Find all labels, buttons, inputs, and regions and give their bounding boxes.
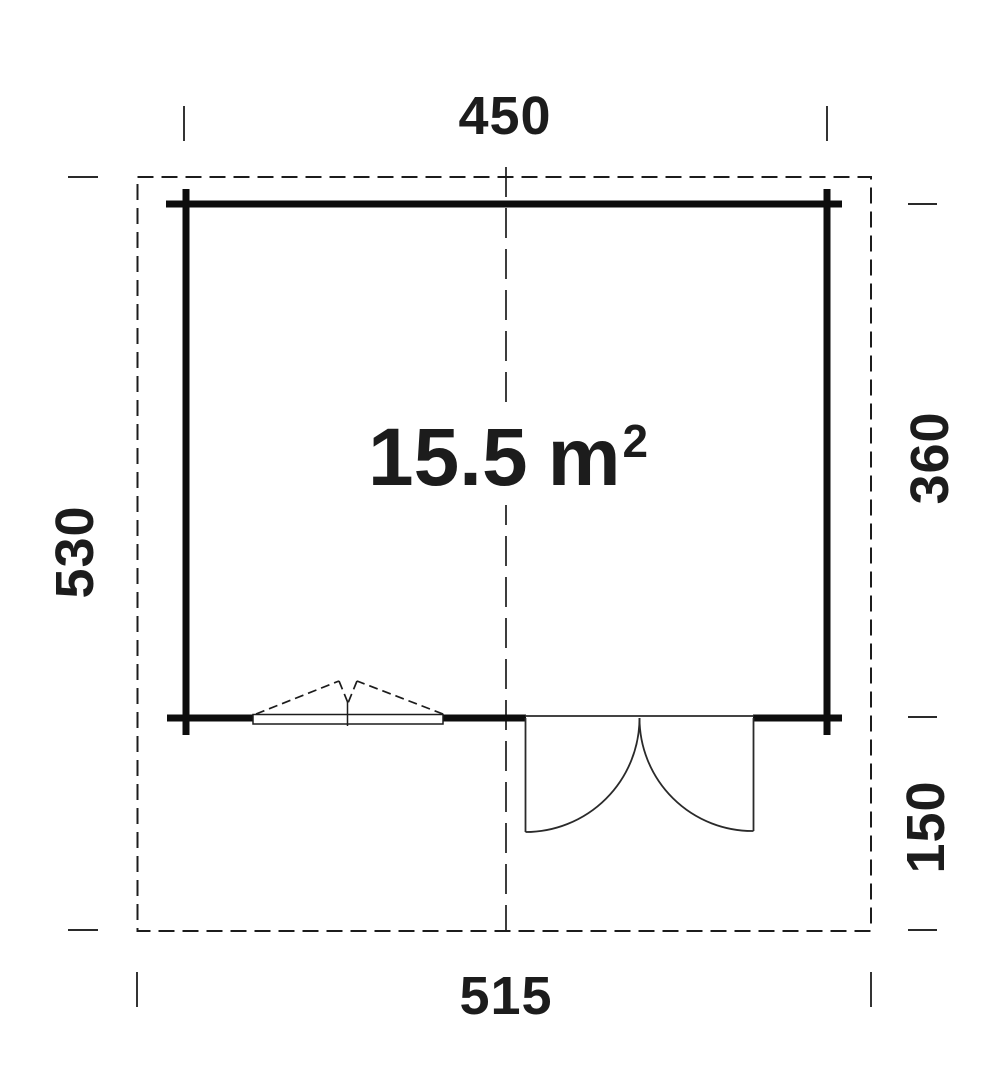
area-unit: m — [548, 412, 621, 503]
area-value: 15.5 — [368, 412, 528, 503]
floor-plan: 450 530 360 150 515 15.5m2 — [0, 0, 1000, 1071]
floor-plan-drawing — [0, 0, 1000, 1071]
door-swing-arc-right — [639, 718, 753, 831]
window — [253, 681, 443, 726]
door-swing-arc-left — [526, 718, 640, 832]
dimension-label-right-lower: 150 — [899, 780, 953, 873]
dimension-ticks — [137, 106, 871, 1007]
dimension-label-left: 530 — [48, 505, 102, 598]
window-opening-dashes — [256, 681, 443, 714]
dimension-label-right-upper: 360 — [903, 411, 957, 504]
area-exponent: 2 — [623, 415, 649, 467]
dimension-label-top: 450 — [458, 89, 551, 143]
outer-boundary-dashed — [138, 177, 872, 931]
dimension-label-bottom: 515 — [459, 969, 552, 1023]
area-label: 15.5m2 — [352, 411, 664, 505]
double-door — [525, 716, 754, 832]
witness-dashes — [68, 177, 937, 930]
